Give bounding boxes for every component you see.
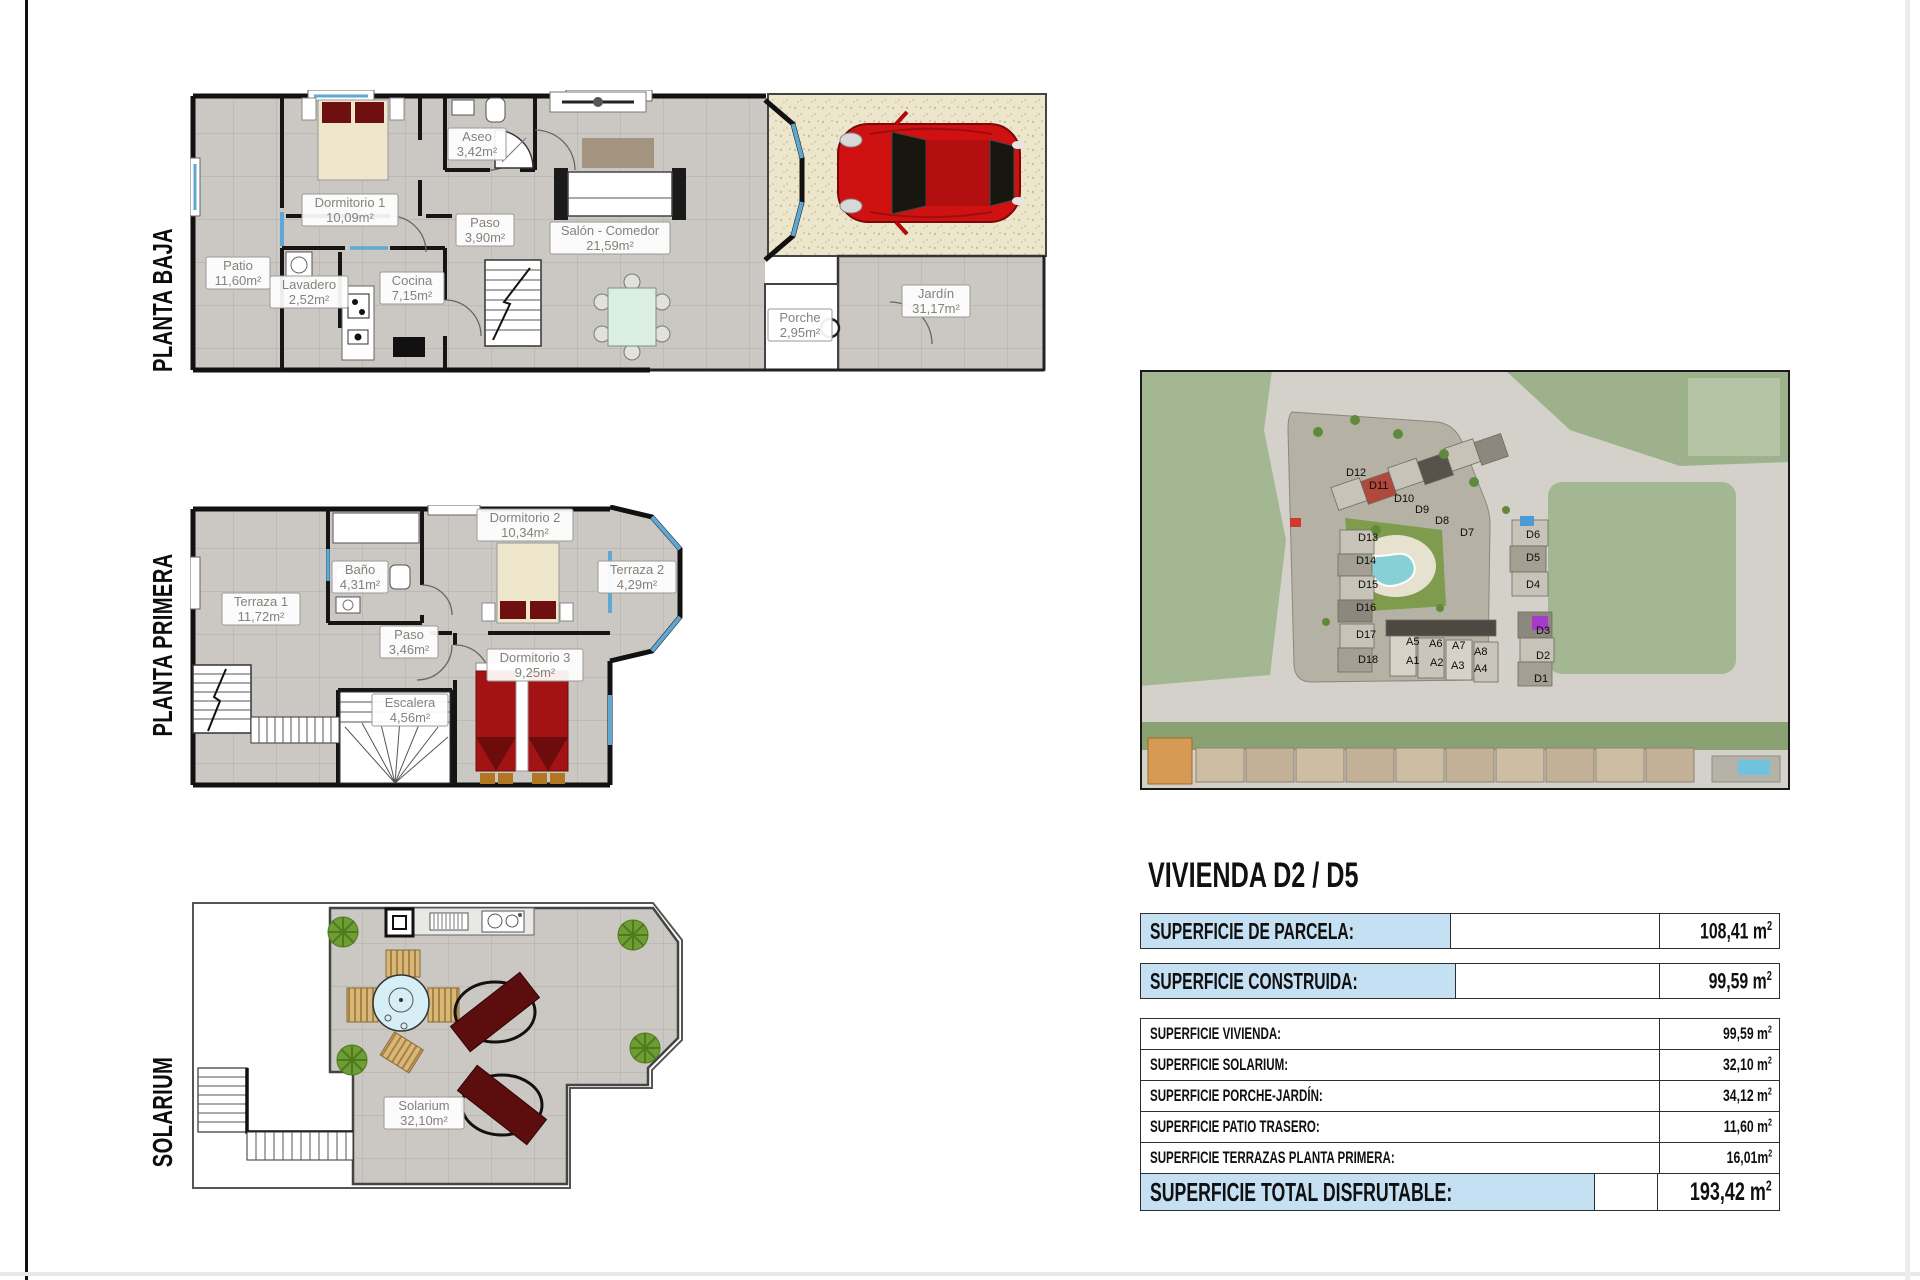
svg-text:A7: A7 <box>1452 640 1465 652</box>
floor-title-solarium: SOLARIUM <box>147 1057 179 1167</box>
svg-text:D14: D14 <box>1356 555 1376 567</box>
svg-text:D9: D9 <box>1415 504 1429 516</box>
summary-row-terrazas: SUPERFICIE TERRAZAS PLANTA PRIMERA: 16,0… <box>1140 1142 1780 1174</box>
room-label-dormitorio3: Dormitorio 3 9,25m² <box>487 649 583 681</box>
brochure-page: PLANTA BAJA PLANTA PRIMERA SOLARIUM <box>0 0 1920 1280</box>
svg-text:D16: D16 <box>1356 602 1376 614</box>
svg-text:21,59m²: 21,59m² <box>586 238 634 253</box>
svg-text:D7: D7 <box>1460 527 1474 539</box>
svg-text:A4: A4 <box>1474 663 1487 675</box>
svg-text:Patio: Patio <box>223 258 253 273</box>
room-label-terraza1: Terraza 1 11,72m² <box>222 593 300 625</box>
svg-text:2,95m²: 2,95m² <box>780 325 821 340</box>
svg-text:D17: D17 <box>1356 629 1376 641</box>
floorplan-planta-primera: Terraza 1 11,72m² Baño 4,31m² Dormitorio… <box>190 505 690 790</box>
svg-text:D3: D3 <box>1536 625 1550 637</box>
svg-text:4,31m²: 4,31m² <box>340 577 381 592</box>
svg-text:4,29m²: 4,29m² <box>617 577 658 592</box>
svg-text:31,17m²: 31,17m² <box>912 301 960 316</box>
row-value: 108,41 m2 <box>1700 918 1772 944</box>
row-value: 99,59 m2 <box>1723 1024 1772 1044</box>
row-label: SUPERFICIE DE PARCELA: <box>1150 918 1354 945</box>
svg-text:11,60m²: 11,60m² <box>215 273 262 288</box>
svg-text:D12: D12 <box>1346 467 1366 479</box>
outdoor-kitchen-counter <box>386 908 534 936</box>
svg-text:3,90m²: 3,90m² <box>465 230 506 245</box>
room-label-aseo: Aseo 3,42m² <box>448 128 506 160</box>
row-label: SUPERFICIE PORCHE-JARDÍN: <box>1150 1086 1323 1106</box>
svg-text:D13: D13 <box>1358 532 1378 544</box>
summary-title: VIVIENDA D2 / D5 <box>1148 856 1359 896</box>
room-label-dormitorio1: Dormitorio 1 10,09m² <box>302 194 398 226</box>
svg-text:D8: D8 <box>1435 515 1449 527</box>
room-label-patio: Patio 11,60m² <box>206 257 270 289</box>
row-label: SUPERFICIE PATIO TRASERO: <box>1150 1117 1320 1137</box>
svg-text:A6: A6 <box>1429 638 1442 650</box>
room-label-escalera: Escalera 4,56m² <box>372 694 448 726</box>
solarium-terrace <box>330 908 678 1184</box>
room-label-jardin: Jardín 31,17m² <box>902 285 970 317</box>
left-border-line <box>25 0 28 1280</box>
room-label-solarium: Solarium 32,10m² <box>384 1097 464 1129</box>
row-label: SUPERFICIE VIVIENDA: <box>1150 1024 1281 1044</box>
field-right <box>1548 482 1736 674</box>
row-value: 99,59 m2 <box>1709 968 1772 994</box>
svg-text:D6: D6 <box>1526 529 1540 541</box>
svg-text:D2: D2 <box>1536 650 1550 662</box>
svg-text:A2: A2 <box>1430 657 1443 669</box>
summary-row-parcela: SUPERFICIE DE PARCELA: 108,41 m2 <box>1140 913 1780 949</box>
room-label-cocina: Cocina 7,15m² <box>380 272 444 304</box>
summary-row-total: SUPERFICIE TOTAL DISFRUTABLE: 193,42 m2 <box>1140 1173 1780 1211</box>
svg-text:A5: A5 <box>1406 636 1419 648</box>
room-label-salon: Salón - Comedor 21,59m² <box>550 222 670 254</box>
svg-text:7,15m²: 7,15m² <box>392 288 433 303</box>
summary-row-solarium: SUPERFICIE SOLARIUM: 32,10 m2 <box>1140 1049 1780 1081</box>
bottom-edge-line <box>0 1272 1920 1276</box>
svg-text:Baño: Baño <box>345 562 375 577</box>
row-label: SUPERFICIE CONSTRUIDA: <box>1150 968 1358 995</box>
svg-text:Aseo: Aseo <box>462 129 492 144</box>
row-value: 32,10 m2 <box>1723 1055 1772 1075</box>
svg-text:32,10m²: 32,10m² <box>400 1113 448 1128</box>
row-value: 11,60 m2 <box>1724 1117 1772 1137</box>
room-label-terraza2: Terraza 2 4,29m² <box>598 561 676 593</box>
room-label-paso: Paso 3,46m² <box>380 626 438 658</box>
floorplan-solarium: Solarium 32,10m² <box>190 900 690 1205</box>
svg-text:Paso: Paso <box>394 627 424 642</box>
svg-text:Terraza 2: Terraza 2 <box>610 562 664 577</box>
right-edge-line <box>1905 0 1910 1280</box>
svg-text:D10: D10 <box>1394 493 1414 505</box>
svg-text:Terraza 1: Terraza 1 <box>234 594 288 609</box>
svg-text:Cocina: Cocina <box>392 273 433 288</box>
svg-text:A8: A8 <box>1474 646 1487 658</box>
row-value: 34,12 m2 <box>1723 1086 1772 1106</box>
site-plan-map: D12 D11 D10 D9 D8 D7 D13 D14 D15 D16 D17… <box>1140 370 1790 790</box>
car-top-view <box>838 112 1024 234</box>
svg-text:3,46m²: 3,46m² <box>389 642 430 657</box>
svg-text:9,25m²: 9,25m² <box>515 665 556 680</box>
room-label-porche: Porche 2,95m² <box>768 309 832 341</box>
summary-row-porche-jardin: SUPERFICIE PORCHE-JARDÍN: 34,12 m2 <box>1140 1080 1780 1112</box>
summary-row-construida: SUPERFICIE CONSTRUIDA: 99,59 m2 <box>1140 963 1780 999</box>
svg-text:A3: A3 <box>1451 660 1464 672</box>
svg-text:3,42m²: 3,42m² <box>457 144 498 159</box>
row-label: SUPERFICIE TERRAZAS PLANTA PRIMERA: <box>1150 1148 1395 1168</box>
summary-row-vivienda: SUPERFICIE VIVIENDA: 99,59 m2 <box>1140 1018 1780 1050</box>
summary-row-patio-trasero: SUPERFICIE PATIO TRASERO: 11,60 m2 <box>1140 1111 1780 1143</box>
row-label: SUPERFICIE SOLARIUM: <box>1150 1055 1288 1075</box>
svg-text:10,34m²: 10,34m² <box>501 525 549 540</box>
surface-summary-panel: VIVIENDA D2 / D5 SUPERFICIE DE PARCELA: … <box>1140 856 1780 1226</box>
room-label-lavadero: Lavadero 2,52m² <box>270 276 348 308</box>
svg-text:Solarium: Solarium <box>398 1098 449 1113</box>
floorplan-planta-baja: Patio 11,60m² Dormitorio 1 10,09m² Aseo … <box>190 90 1050 375</box>
svg-text:4,56m²: 4,56m² <box>390 710 431 725</box>
svg-text:Dormitorio 1: Dormitorio 1 <box>315 195 386 210</box>
svg-text:Escalera: Escalera <box>385 695 436 710</box>
svg-text:Paso: Paso <box>470 215 500 230</box>
svg-text:Lavadero: Lavadero <box>282 277 336 292</box>
svg-text:Salón - Comedor: Salón - Comedor <box>561 223 660 238</box>
svg-text:10,09m²: 10,09m² <box>326 210 374 225</box>
staircase <box>485 260 541 346</box>
floor-title-planta-baja: PLANTA BAJA <box>147 228 179 372</box>
svg-text:D5: D5 <box>1526 552 1540 564</box>
row-value: 193,42 m2 <box>1690 1178 1772 1207</box>
room-label-dormitorio2: Dormitorio 2 10,34m² <box>477 509 573 541</box>
row-label: SUPERFICIE TOTAL DISFRUTABLE: <box>1150 1177 1452 1208</box>
field-left <box>1140 370 1286 686</box>
svg-text:Dormitorio 3: Dormitorio 3 <box>500 650 571 665</box>
floor-title-planta-primera: PLANTA PRIMERA <box>147 553 179 736</box>
svg-text:D18: D18 <box>1358 654 1378 666</box>
svg-text:11,72m²: 11,72m² <box>238 609 285 624</box>
room-label-paso: Paso 3,90m² <box>456 214 514 246</box>
svg-text:Jardín: Jardín <box>918 286 954 301</box>
svg-text:Dormitorio 2: Dormitorio 2 <box>490 510 561 525</box>
svg-text:D4: D4 <box>1526 579 1540 591</box>
room-label-bano: Baño 4,31m² <box>332 561 388 593</box>
row-value: 16,01m2 <box>1727 1148 1772 1168</box>
svg-text:A1: A1 <box>1406 655 1419 667</box>
svg-text:D15: D15 <box>1358 579 1378 591</box>
svg-text:D1: D1 <box>1534 673 1548 685</box>
svg-text:D11: D11 <box>1369 480 1388 492</box>
svg-text:2,52m²: 2,52m² <box>289 292 330 307</box>
svg-text:Porche: Porche <box>779 310 820 325</box>
